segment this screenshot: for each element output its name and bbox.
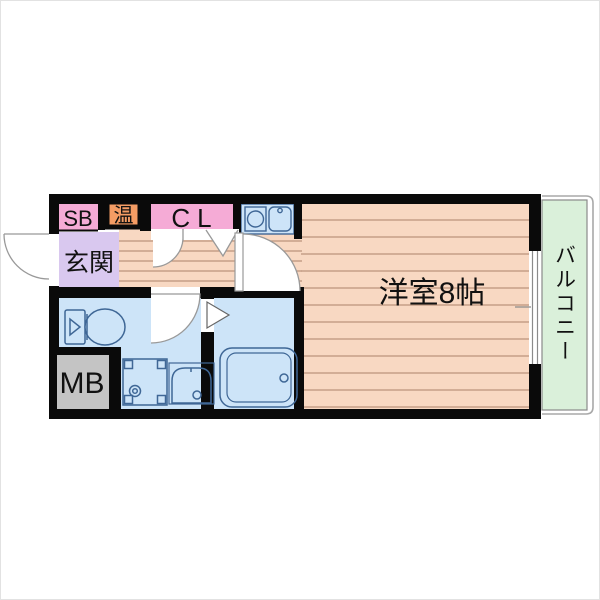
room-door-leaf xyxy=(235,233,243,291)
wall-stub-closet xyxy=(233,194,241,234)
entrance-label: 玄関 xyxy=(64,249,114,277)
wall-bathroom-right xyxy=(294,288,304,409)
floorplan-drawing: SB 温 CL 玄関 洋室8帖 バルコニー MB xyxy=(1,1,600,600)
kitchen-counter xyxy=(241,204,294,234)
toilet-tank xyxy=(65,310,85,344)
wall-stub-kitchen xyxy=(294,194,302,239)
closet-label: CL xyxy=(171,203,218,233)
entrance-swing-area xyxy=(4,234,49,279)
wall-stub-heater xyxy=(140,194,151,231)
toilet-bowl xyxy=(85,309,125,345)
entrance-door-swing-icon xyxy=(4,234,59,286)
wall-stub-sb xyxy=(98,194,105,230)
toilet-icon xyxy=(65,309,125,345)
shoe-box-label: SB xyxy=(63,206,92,231)
balcony-label: バルコニー xyxy=(553,244,576,364)
western-room-label: 洋室8帖 xyxy=(379,277,486,310)
meter-box-label: MB xyxy=(60,367,105,400)
wall-bottom xyxy=(49,409,541,419)
kitchen-unit-icon xyxy=(241,204,294,234)
entrance-opening xyxy=(49,234,59,286)
floorplan: SB 温 CL 玄関 洋室8帖 バルコニー MB xyxy=(0,0,600,600)
water-heater-label: 温 xyxy=(114,204,134,227)
wall-washroom-top-left xyxy=(59,287,151,298)
